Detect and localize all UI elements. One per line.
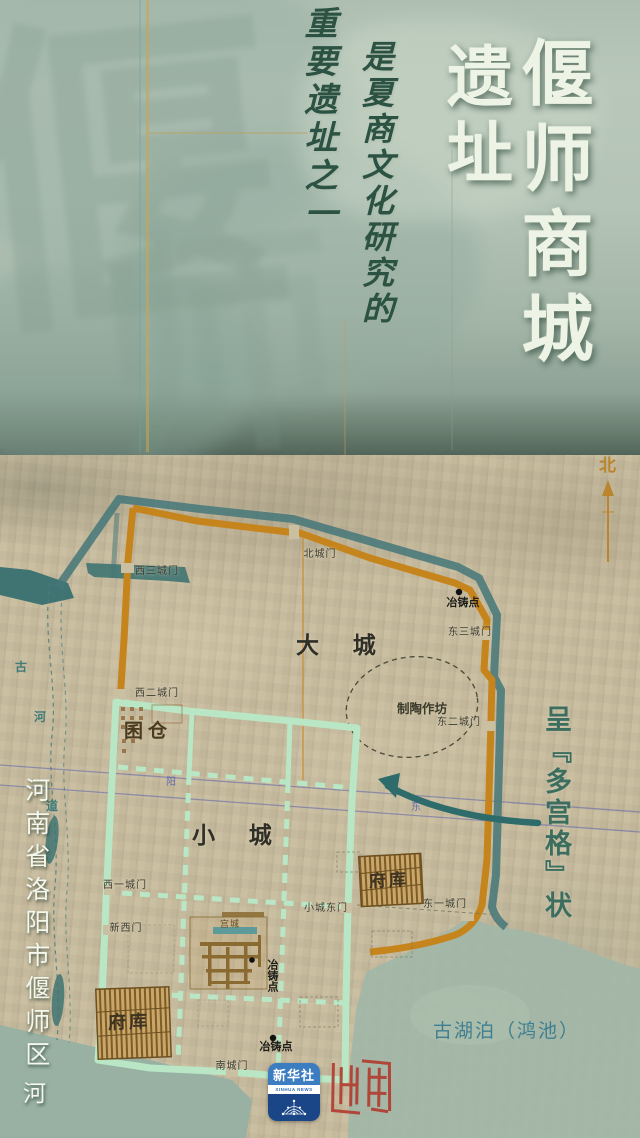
gate-label-west1: 西一城门 [91, 880, 159, 892]
palace-city-label: 宫城 [220, 919, 240, 929]
road-name-char: 阳 [166, 777, 176, 789]
tagline-column-2: 重要遗址之一 [300, 6, 333, 234]
casting-label-3: 冶铸点 [246, 1041, 306, 1054]
ancient-river-course [61, 587, 70, 1043]
treasury-upper-label: 府库 [369, 870, 410, 892]
big-city-label: 大 城 [296, 633, 390, 659]
gate-label-west2: 西二城门 [123, 688, 191, 700]
casting-dot-2 [249, 957, 255, 963]
gate-label-new-west: 新西门 [92, 923, 160, 935]
map-texture-line [139, 0, 141, 452]
gate-label-east3: 东三城门 [436, 627, 504, 639]
gate-gap-north [289, 525, 299, 539]
road-name-char: 东 [411, 802, 421, 814]
gate-label-small-east: 小城东门 [292, 903, 360, 915]
treasury-lower-label: 府库 [108, 1011, 151, 1033]
river-label: 河 [23, 1081, 46, 1107]
seal-stamp [328, 1056, 393, 1117]
gate-label-east1: 东一城门 [411, 899, 479, 911]
grid-line-v1-top [189, 713, 192, 775]
gate-label-east2: 东二城门 [425, 717, 493, 729]
casting-dot-1 [456, 589, 462, 595]
pottery-workshop-label: 制陶作坊 [382, 702, 462, 716]
annotation-location: 河南省洛阳市偃师区 [20, 777, 49, 1077]
grid-line-h1 [118, 767, 353, 788]
banner: 偃 师 偃师商城 遗址 是夏商文化研究的 重要遗址之一 [0, 0, 640, 455]
calligraphy-watermark: 师 [88, 218, 352, 482]
grid-line-v1 [178, 775, 189, 1063]
site-map: 北 大 城 小 城 西三城门 北城门 东三城门 西二城门 东二城门 东一城门 西… [0, 455, 640, 1138]
page-title: 偃师商城 [514, 36, 586, 376]
gate-label-west3: 西三城门 [123, 566, 191, 578]
ancient-river-char: 古 [15, 661, 27, 675]
tagline-column-1: 是夏商文化研究的 [360, 40, 392, 328]
gate-label-south: 南城门 [198, 1061, 266, 1073]
ancient-river-char: 河 [34, 711, 46, 725]
compass-north-label: 北 [599, 456, 616, 476]
casting-label-2: 冶铸点 [264, 953, 278, 997]
xinhua-logo-cn: 新华社 [268, 1063, 320, 1085]
globe-network-icon [281, 1098, 307, 1118]
xinhua-logo: 新华社 XINHUA NEWS [268, 1063, 320, 1121]
map-texture-line [344, 320, 346, 455]
infographic: 偃 师 偃师商城 遗址 是夏商文化研究的 重要遗址之一 [0, 0, 640, 1138]
great-city-wall-west [120, 508, 133, 702]
small-city-label: 小 城 [192, 823, 286, 849]
annotation-multi-grid: 呈『多宫格』状 [540, 705, 571, 935]
gate-label-north: 北城门 [286, 549, 354, 561]
north-arrow [602, 480, 614, 562]
ancient-lake-label: 古湖泊（鸿池） [433, 1021, 593, 1043]
xinhua-logo-en: XINHUA NEWS [268, 1085, 320, 1094]
river-pond [50, 974, 66, 1027]
page-title-suffix: 遗址 [440, 42, 506, 194]
gate-gap-east1 [461, 910, 474, 921]
grid-line-v2-top [288, 721, 290, 783]
xinhua-globe [268, 1094, 320, 1121]
map-texture-line [451, 150, 453, 450]
granary-label: 囷仓 [124, 721, 172, 743]
map-texture-line [146, 0, 149, 452]
casting-label-1: 冶铸点 [433, 597, 493, 610]
map-texture-line [148, 132, 308, 134]
